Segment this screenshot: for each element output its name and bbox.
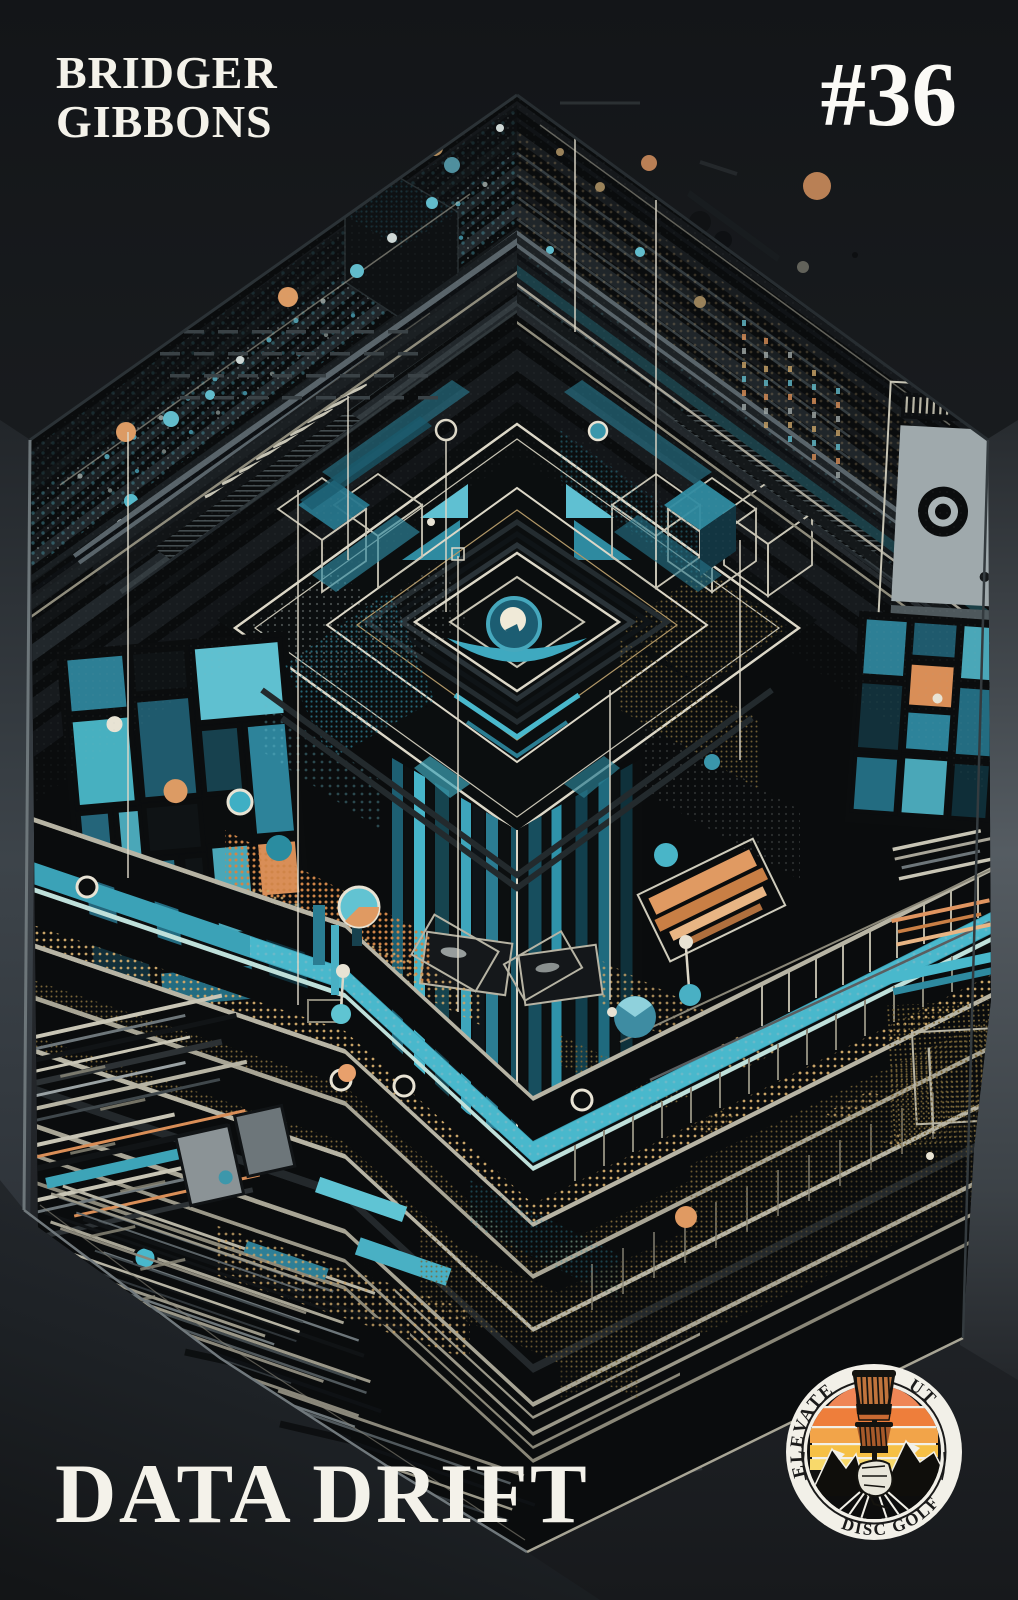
svg-text:BRIDGER: BRIDGER [56,47,278,98]
svg-text:DATA DRIFT: DATA DRIFT [55,1447,589,1541]
svg-text:#36: #36 [821,44,958,145]
svg-text:GIBBONS: GIBBONS [56,96,273,147]
